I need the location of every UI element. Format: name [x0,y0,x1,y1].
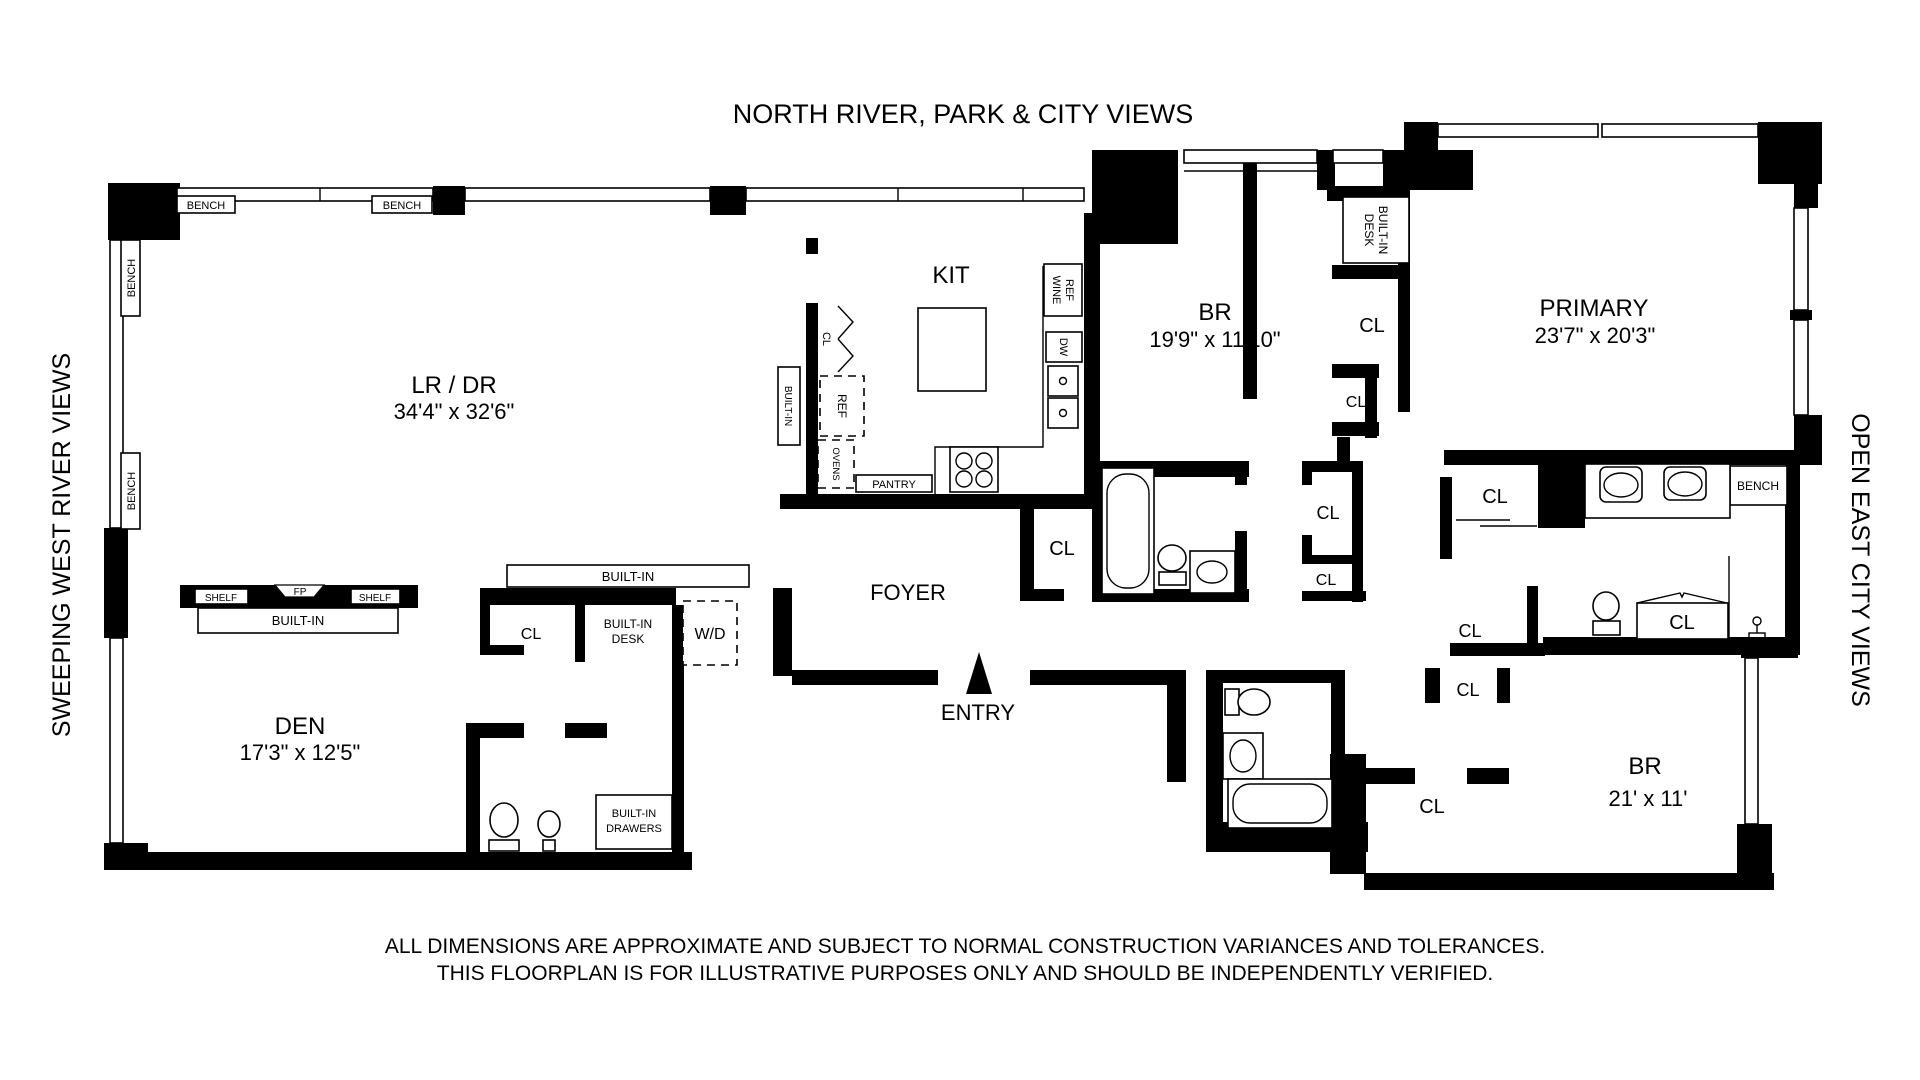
bench-label: BENCH [1737,479,1779,493]
room-label-kit: KIT [932,262,970,289]
closet-label: CL [1419,796,1445,818]
built-in-desk-label: DESK [1362,214,1376,247]
floorplan-canvas: NORTH RIVER, PARK & CITY VIEWS SWEEPING … [0,0,1920,1080]
closet-label: CL [1316,503,1339,523]
closet-label: CL [1458,621,1481,641]
den-bath: BUILT-IN DRAWERS [489,795,672,851]
room-label-br-top: BR [1198,299,1231,326]
closet-label: CL [820,332,832,346]
toilet-icon [1593,592,1619,620]
floorplan-page: NORTH RIVER, PARK & CITY VIEWS SWEEPING … [0,0,1920,1080]
room-label-primary: PRIMARY [1540,295,1649,322]
stove-icon [950,447,998,492]
room-label-br-right: BR [1628,753,1661,780]
disclaimer-line-1: ALL DIMENSIONS ARE APPROXIMATE AND SUBJE… [385,935,1545,958]
washer-dryer-label: W/D [694,626,725,643]
pantry-label: PANTRY [872,479,916,491]
wine-ref-icon [1044,264,1082,316]
closet-desk-row: BUILT-IN CL BUILT-IN DESK W/D [507,565,749,665]
room-dims-primary: 23'7" x 20'3" [1535,323,1656,348]
built-in-drawers-label: BUILT-IN [612,808,656,820]
room-label-foyer: FOYER [870,580,946,605]
hanging-rod-icon [1637,593,1727,603]
page-title: NORTH RIVER, PARK & CITY VIEWS [733,99,1194,129]
closet-label: CL [1669,612,1695,634]
bifold-door-icon [838,306,853,372]
side-label-east: OPEN EAST CITY VIEWS [1846,413,1874,707]
toilet-icon [1158,545,1186,571]
entry-arrow-icon [966,652,992,694]
bathtub-icon [1228,779,1332,828]
room-label-den: DEN [275,713,326,740]
toilet-icon [1225,689,1239,715]
kitchen-island [918,308,986,391]
built-in-label: BUILT-IN [782,386,793,426]
closet-label: CL [1049,538,1075,560]
wine-ref-label: WINE [1050,276,1062,305]
bench-label: BENCH [383,200,422,212]
room-label-lr-dr: LR / DR [411,372,496,399]
dishwasher-label: DW [1057,338,1069,357]
closet-label: CL [1346,394,1367,411]
shelf-label: SHELF [359,593,391,604]
closet-label: CL [1482,486,1508,508]
room-dims-lr-dr: 34'4" x 32'6" [394,399,515,424]
bench-label: BENCH [126,259,138,298]
shower-fixture-icon [1753,617,1761,625]
closet-label: CL [1316,572,1337,589]
built-in-desk-label: BUILT-IN [1376,206,1390,254]
built-in-label: BUILT-IN [272,613,325,628]
refrigerator-label: REF [835,394,849,418]
walls [104,122,1822,890]
sink-icon [538,811,560,837]
room-dims-br-top: 19'9" x 11'10" [1149,327,1280,352]
closet-label: CL [521,626,542,643]
built-in-drawers-label: DRAWERS [606,823,662,835]
built-in-label: BUILT-IN [602,569,655,584]
bench-label: BENCH [126,472,138,511]
den-built-in-unit: FP SHELF SHELF BUILT-IN [195,585,400,633]
bathtub-icon [1102,468,1154,594]
toilet-icon [490,803,518,837]
sink-icon [1048,398,1078,428]
room-dims-br-right: 21' x 11' [1609,786,1688,811]
built-in-desk-label: DESK [612,632,645,646]
sink-icon [1048,366,1078,396]
wine-ref-label: REF [1063,279,1075,301]
ovens-label: OVENS [830,447,841,480]
fireplace-label: FP [294,587,307,598]
disclaimer-line-2: THIS FLOORPLAN IS FOR ILLUSTRATIVE PURPO… [437,962,1493,985]
room-dims-den: 17'3" x 12'5" [240,740,361,765]
room-label-entry: ENTRY [941,700,1015,725]
side-label-west: SWEEPING WEST RIVER VIEWS [48,353,76,737]
built-in-desk-label: BUILT-IN [604,617,652,631]
primary-bath: CL CL CL CL [1456,464,1765,700]
bench-label: BENCH [187,200,226,212]
closet-label: CL [1359,315,1385,337]
shelf-label: SHELF [205,593,237,604]
kitchen-fixtures: REF WINE DW REF OVENS PANTRY BUILT-IN CL [778,264,1082,494]
closet-label: CL [1456,680,1479,700]
